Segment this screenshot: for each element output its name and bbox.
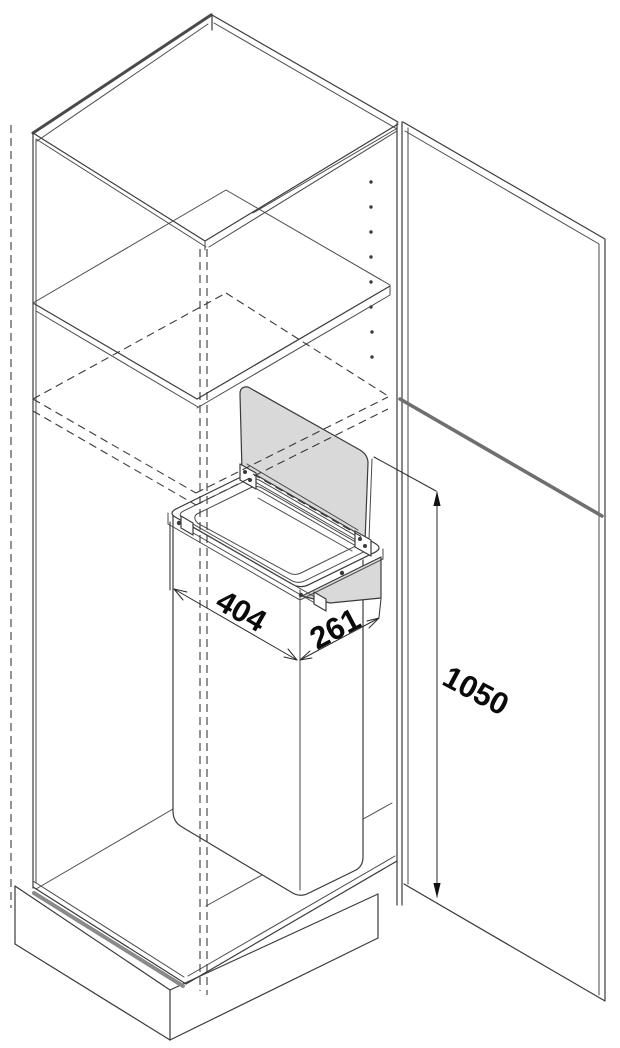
plinth-top-edge-thick [34,893,183,986]
top-edge-thick [33,15,211,133]
plinth [15,886,378,1040]
cabinet-door-open [400,122,605,1001]
shelf-pin-holes [369,180,373,358]
cabinet-bin-installation-diagram: 404 261 1050 [0,0,620,1048]
diagram-canvas: 404 261 1050 [0,0,620,1048]
cabinet-shelf [33,190,390,408]
